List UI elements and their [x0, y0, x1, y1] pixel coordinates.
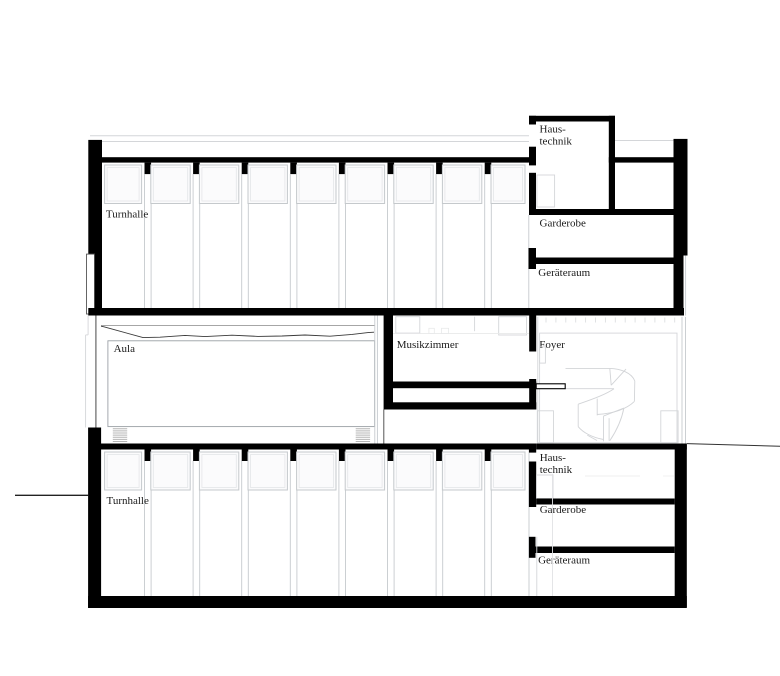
- svg-text:Foyer: Foyer: [539, 339, 565, 351]
- svg-text:technik: technik: [540, 136, 573, 148]
- svg-text:Geräteraum: Geräteraum: [538, 555, 590, 567]
- svg-text:Garderobe: Garderobe: [540, 217, 587, 229]
- svg-text:Haus-: Haus-: [540, 123, 567, 135]
- svg-text:technik: technik: [540, 464, 573, 476]
- svg-text:Garderobe: Garderobe: [540, 504, 587, 516]
- svg-text:Aula: Aula: [114, 343, 136, 355]
- svg-text:Turnhalle: Turnhalle: [106, 208, 148, 220]
- svg-text:Geräteraum: Geräteraum: [538, 267, 590, 279]
- svg-text:Musikzimmer: Musikzimmer: [397, 339, 459, 351]
- svg-text:Turnhalle: Turnhalle: [107, 495, 149, 507]
- svg-text:Haus-: Haus-: [540, 452, 567, 464]
